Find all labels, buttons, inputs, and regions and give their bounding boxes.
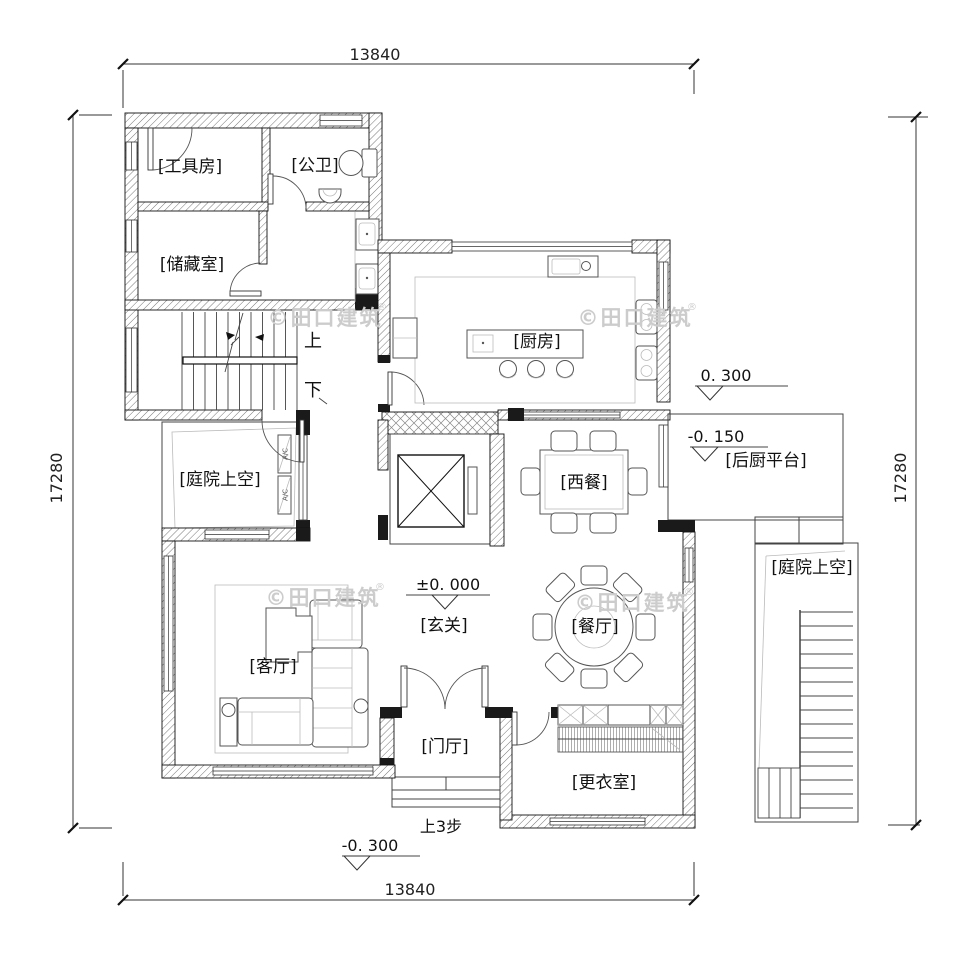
room-label-storage: [储藏室] [160, 255, 224, 275]
dim-right-value: 17280 [891, 453, 910, 504]
svg-text:0. 300: 0. 300 [701, 366, 752, 385]
dimension-bottom: 13840 [118, 862, 699, 905]
ac-unit-icon: A/C [278, 435, 291, 473]
elevation-marker-platform-high: 0. 300 [695, 366, 788, 400]
elevator-shaft [398, 455, 477, 527]
svg-text:-0. 150: -0. 150 [688, 427, 745, 446]
exterior-stair-landing [758, 768, 800, 818]
room-label-dressing-room: [更衣室] [572, 773, 636, 793]
elevator-block [378, 412, 504, 546]
svg-text:-0. 300: -0. 300 [342, 836, 399, 855]
svg-text:®: ® [687, 302, 697, 313]
side-table [220, 698, 237, 746]
stair-up-label: 上 [304, 331, 322, 352]
watermark: ©田口建筑 ® [266, 582, 386, 610]
foyer-steps: [门厅] 上3步 [392, 737, 500, 836]
room-label-public-wc: [公卫] [291, 156, 338, 176]
western-dining-set: [西餐] [521, 431, 647, 533]
kitchen-sink-icon [548, 256, 598, 277]
courtyard-right: [庭院上空] [755, 543, 858, 822]
coffee-table [266, 608, 312, 662]
toilet-icon [339, 149, 377, 177]
bar-stools [500, 361, 574, 379]
dim-bottom-value: 13840 [385, 880, 436, 899]
door-dressing [512, 712, 549, 745]
room-label-living-room: [客厅] [249, 657, 296, 677]
room-label-courtyard-left: [庭院上空] [179, 470, 260, 490]
watermark: ©田口建筑 ® [575, 587, 695, 615]
entry-hall: ±0. 000 [玄关] [406, 575, 490, 636]
floor-plan-drawing: 13840 13840 17280 17280 [0, 0, 960, 960]
dining-entry-walls [380, 520, 695, 828]
ac-unit-icon: A/C [278, 476, 291, 514]
dim-top-value: 13840 [350, 45, 401, 64]
door-storage [230, 263, 261, 296]
svg-text:©田口建筑: ©田口建筑 [575, 591, 690, 615]
door-kitchen [388, 372, 424, 405]
dimension-right: 17280 [888, 112, 928, 830]
double-entry-door [401, 666, 488, 709]
watermark: ©田口建筑 ® [578, 302, 698, 330]
floor-plan-page: 13840 13840 17280 17280 [0, 0, 960, 960]
pantry-hatch [382, 412, 498, 434]
svg-text:®: ® [375, 582, 385, 593]
rear-kitchen-platform: [后厨平台] 0. 300 -0. 150 [659, 366, 843, 544]
door-public-wc [268, 174, 306, 208]
elevation-marker-ground: ±0. 000 [406, 575, 490, 609]
living-room-furniture: [客厅] [215, 585, 368, 753]
fridge-icon [393, 318, 417, 358]
svg-text:A/C: A/C [282, 489, 290, 501]
svg-text:©田口建筑: ©田口建筑 [578, 306, 693, 330]
wc-basin-icon [319, 189, 341, 203]
room-label-rear-kitchen-platform: [后厨平台] [725, 451, 806, 471]
stair-up3-label: 上3步 [420, 817, 462, 836]
room-label-tool-room: [工具房] [158, 157, 222, 177]
room-label-western-dining: [西餐] [560, 473, 607, 493]
room-label-courtyard-right: [庭院上空] [771, 558, 852, 578]
vanity-sinks-icon [355, 212, 379, 302]
wardrobe-hanging [558, 727, 683, 752]
svg-text:®: ® [684, 587, 694, 598]
dimension-left: 17280 [47, 110, 112, 833]
svg-text:©田口建筑: ©田口建筑 [268, 306, 383, 330]
courtyard-left: A/C A/C [庭院上空] [162, 412, 310, 537]
dressing-room: [更衣室] [512, 705, 683, 793]
svg-text:±0. 000: ±0. 000 [416, 575, 480, 594]
wardrobe-shelf [558, 705, 683, 725]
elevation-marker-outside: -0. 300 [342, 836, 420, 870]
dim-left-value: 17280 [47, 453, 66, 504]
room-label-entry-hall: [玄关] [420, 616, 467, 636]
watermark: ©田口建筑 ® [268, 302, 388, 330]
svg-text:©田口建筑: ©田口建筑 [266, 586, 381, 610]
room-label-kitchen: [厨房] [513, 332, 560, 352]
dining-table-round: [餐厅] [533, 566, 655, 688]
room-label-dining-room: [餐厅] [571, 617, 618, 637]
dimension-top: 13840 [118, 45, 699, 108]
exterior-stair-treads [800, 612, 853, 808]
room-label-foyer: [门厅] [421, 737, 468, 757]
svg-text:®: ® [377, 302, 387, 313]
